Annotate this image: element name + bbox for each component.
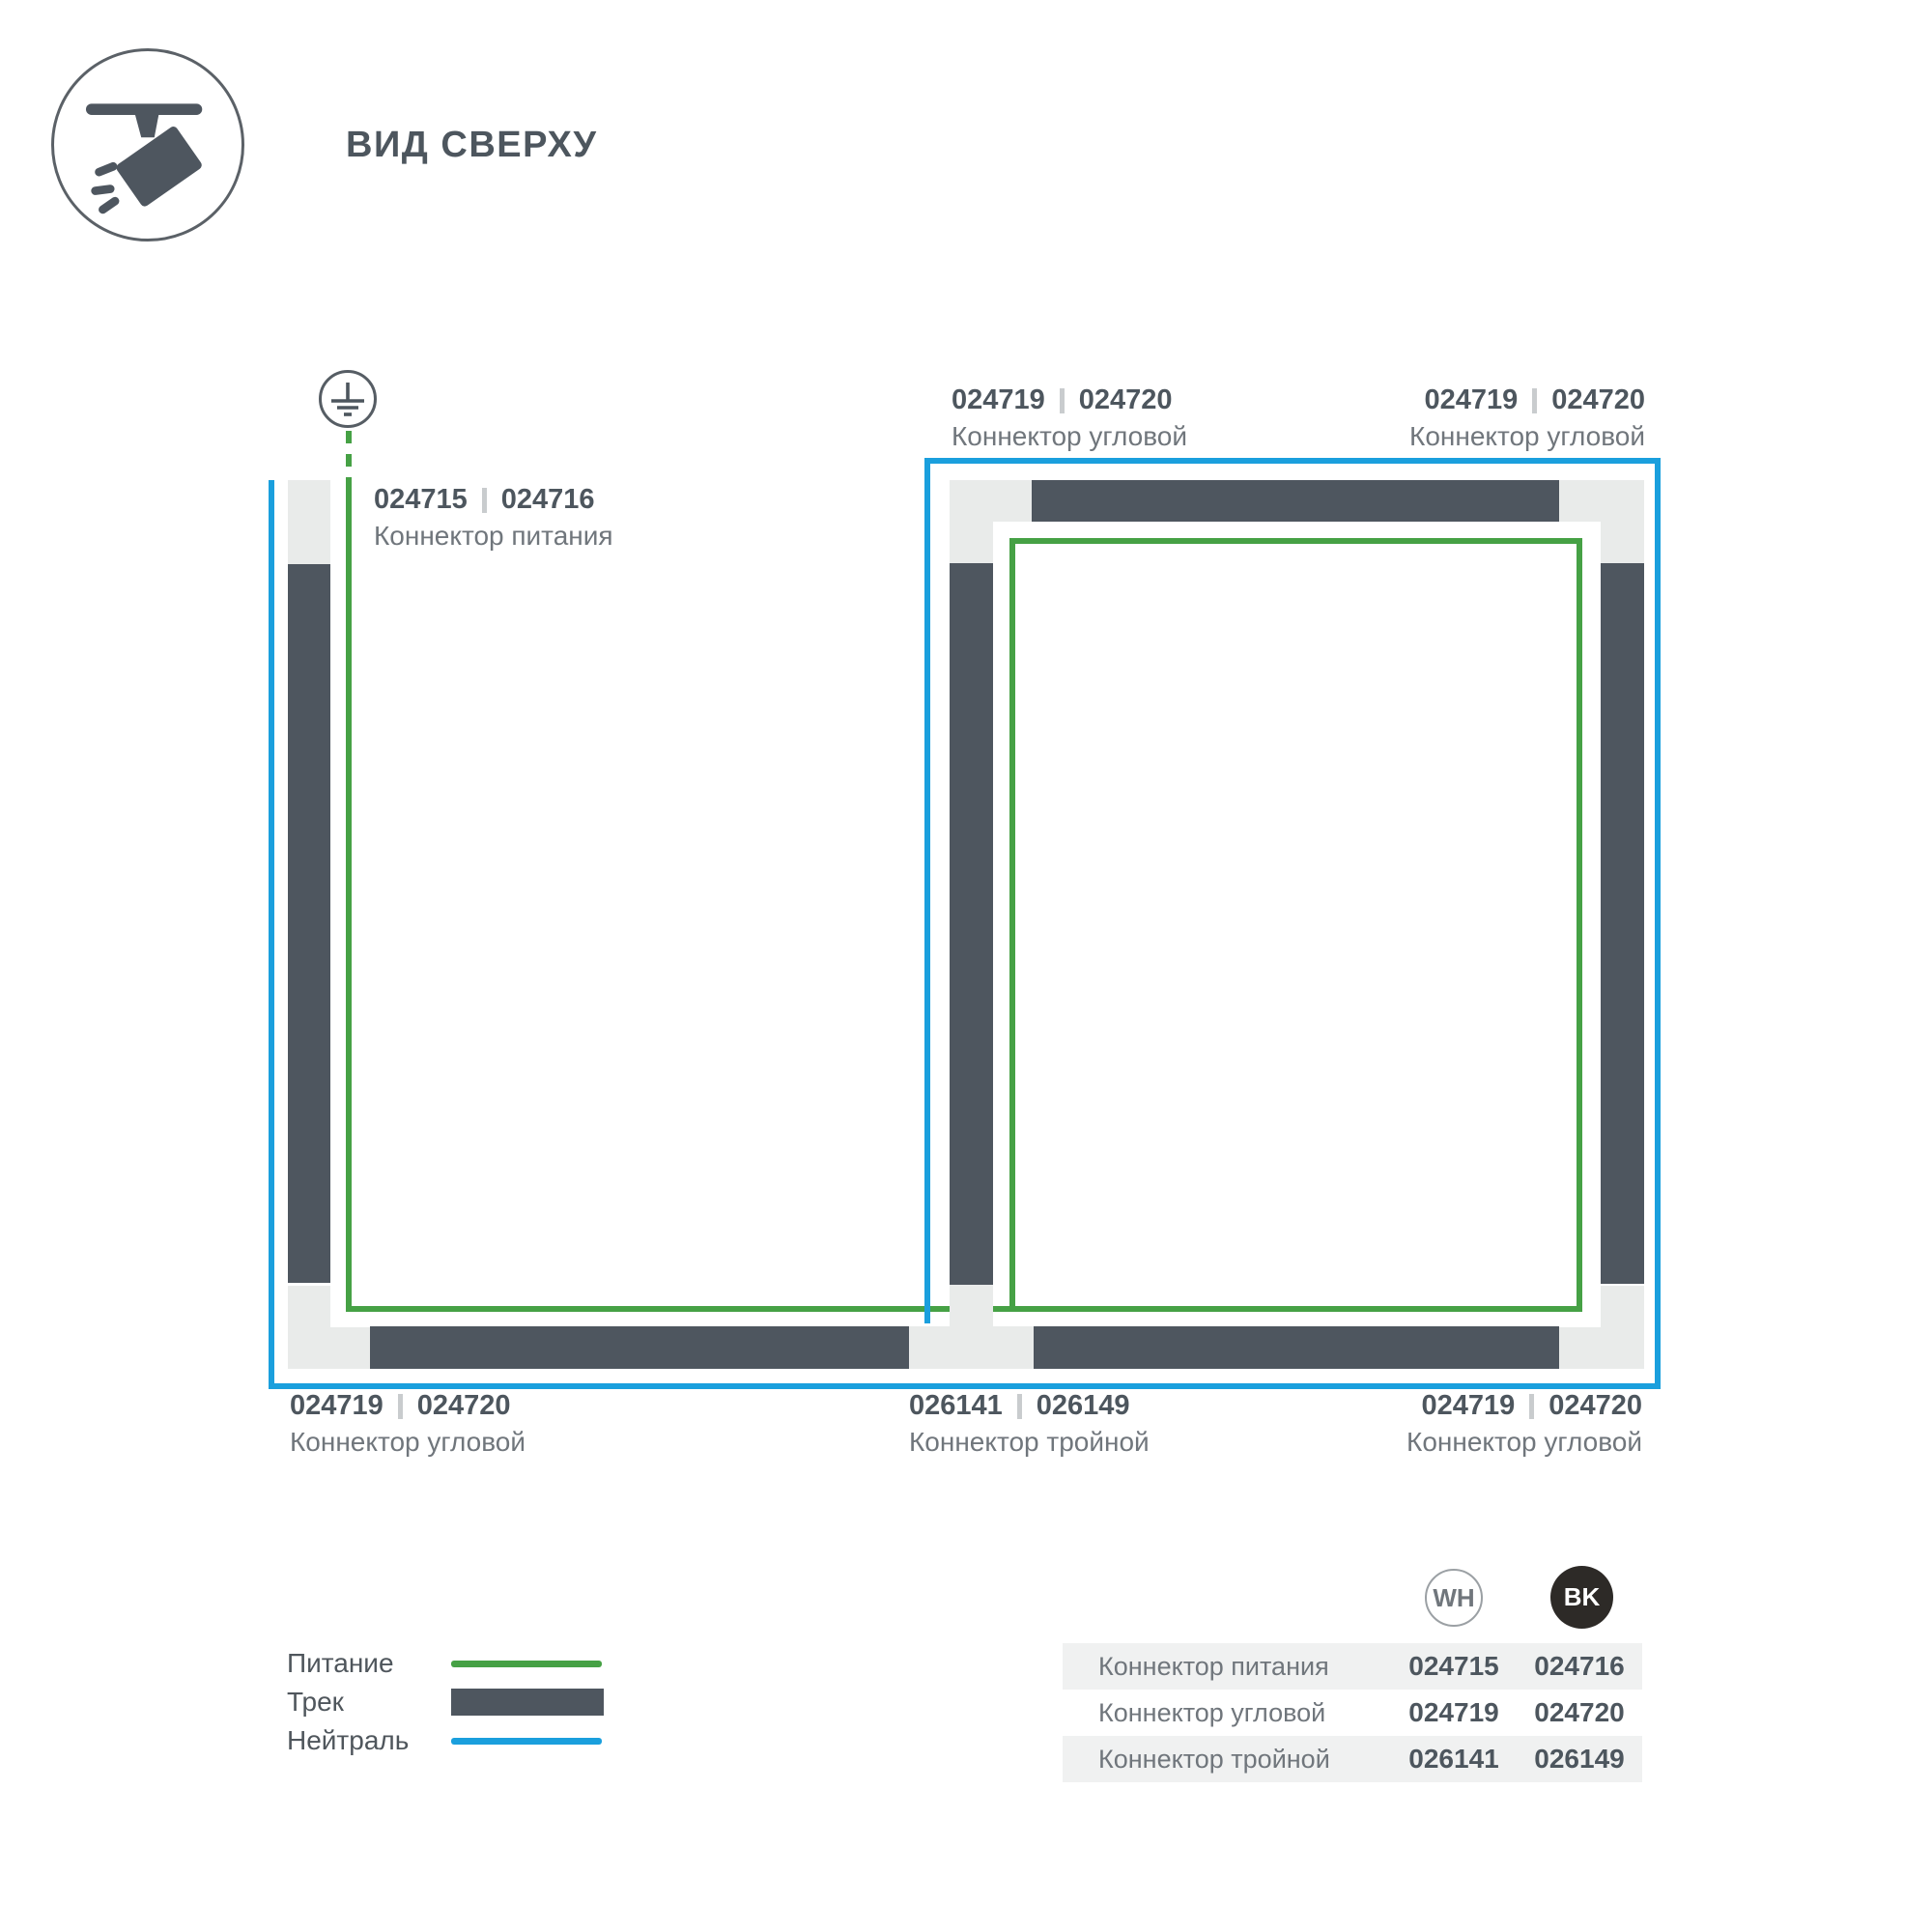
label-corner-top-right: 024719 024720 Коннектор угловой bbox=[1409, 386, 1645, 450]
legend: Питание Трек Нейтраль bbox=[287, 1644, 606, 1760]
code-separator bbox=[1529, 1394, 1534, 1419]
track-spotlight-glyph bbox=[54, 51, 241, 239]
parts-table-rows: Коннектор питания 024715 024716 Коннекто… bbox=[1063, 1643, 1642, 1782]
page-title: ВИД СВЕРХУ bbox=[346, 127, 598, 163]
label-triple-connector: 026141 026149 Коннектор тройной bbox=[909, 1392, 1150, 1456]
label-corner-bottom-right: 024719 024720 Коннектор угловой bbox=[1406, 1392, 1642, 1456]
power-line-bottom-horizontal bbox=[346, 1306, 1015, 1312]
code-separator bbox=[1060, 388, 1065, 413]
color-badge-white: WH bbox=[1425, 1569, 1483, 1627]
label-codes: 024715 024716 bbox=[374, 486, 595, 514]
track-spotlight-icon bbox=[51, 48, 244, 241]
neutral-line-left-vertical bbox=[269, 480, 274, 1389]
label-codes: 024719 024720 bbox=[952, 386, 1173, 414]
power-connector-piece bbox=[288, 480, 330, 564]
power-line-dashed bbox=[346, 431, 352, 482]
table-row: Коннектор питания 024715 024716 bbox=[1063, 1643, 1642, 1690]
power-line-swatch bbox=[451, 1661, 602, 1667]
neutral-line-bottom bbox=[269, 1383, 1661, 1389]
legend-row-power: Питание bbox=[287, 1644, 606, 1683]
code-separator bbox=[1532, 388, 1537, 413]
track-right-vertical bbox=[1601, 563, 1644, 1284]
label-codes: 026141 026149 bbox=[909, 1392, 1130, 1420]
code-separator bbox=[1017, 1394, 1022, 1419]
label-caption: Коннектор угловой bbox=[1409, 423, 1645, 450]
track-right-top bbox=[1032, 480, 1559, 522]
track-swatch bbox=[451, 1689, 604, 1716]
neutral-line-right-top bbox=[924, 458, 1661, 464]
code-separator bbox=[398, 1394, 403, 1419]
neutral-line-middle-vertical bbox=[924, 458, 930, 1323]
track-bottom-right bbox=[1034, 1326, 1559, 1369]
label-codes: 024719 024720 bbox=[1421, 1392, 1642, 1420]
corner-connector-bottom-left-arm bbox=[288, 1286, 330, 1369]
legend-row-neutral: Нейтраль bbox=[287, 1721, 606, 1760]
label-caption: Коннектор питания bbox=[374, 523, 613, 550]
table-row: Коннектор угловой 024719 024720 bbox=[1063, 1690, 1642, 1736]
power-line-left-vertical bbox=[346, 481, 352, 1312]
corner-connector-bottom-right-arm bbox=[1601, 1286, 1644, 1369]
label-corner-top-left: 024719 024720 Коннектор угловой bbox=[952, 386, 1187, 450]
legend-row-track: Трек bbox=[287, 1683, 606, 1721]
power-line-right-loop bbox=[1009, 538, 1582, 1312]
triple-connector-base bbox=[909, 1326, 1034, 1369]
table-row: Коннектор тройной 026141 026149 bbox=[1063, 1736, 1642, 1782]
corner-connector-top-right-arm bbox=[1601, 480, 1644, 563]
triple-connector-stem bbox=[950, 1285, 993, 1326]
label-caption: Коннектор угловой bbox=[952, 423, 1187, 450]
label-codes: 024719 024720 bbox=[1424, 386, 1645, 414]
earth-ground-icon bbox=[319, 370, 377, 428]
color-badge-black: BK bbox=[1550, 1566, 1613, 1629]
label-power-connector: 024715 024716 Коннектор питания bbox=[374, 486, 613, 550]
neutral-line-right-vertical bbox=[1655, 458, 1661, 1389]
track-left-vertical bbox=[288, 564, 330, 1283]
label-corner-bottom-left: 024719 024720 Коннектор угловой bbox=[290, 1392, 526, 1456]
track-middle-vertical bbox=[950, 563, 993, 1285]
neutral-line-swatch bbox=[451, 1738, 602, 1745]
label-codes: 024719 024720 bbox=[290, 1392, 511, 1420]
corner-connector-top-left-arm bbox=[950, 480, 993, 563]
track-bottom-left bbox=[370, 1326, 909, 1369]
page: ВИД СВЕРХУ bbox=[0, 0, 1932, 1932]
code-separator bbox=[482, 488, 487, 513]
label-caption: Коннектор угловой bbox=[1406, 1429, 1642, 1456]
earth-ground-glyph bbox=[322, 373, 374, 425]
label-caption: Коннектор угловой bbox=[290, 1429, 526, 1456]
label-caption: Коннектор тройной bbox=[909, 1429, 1150, 1456]
